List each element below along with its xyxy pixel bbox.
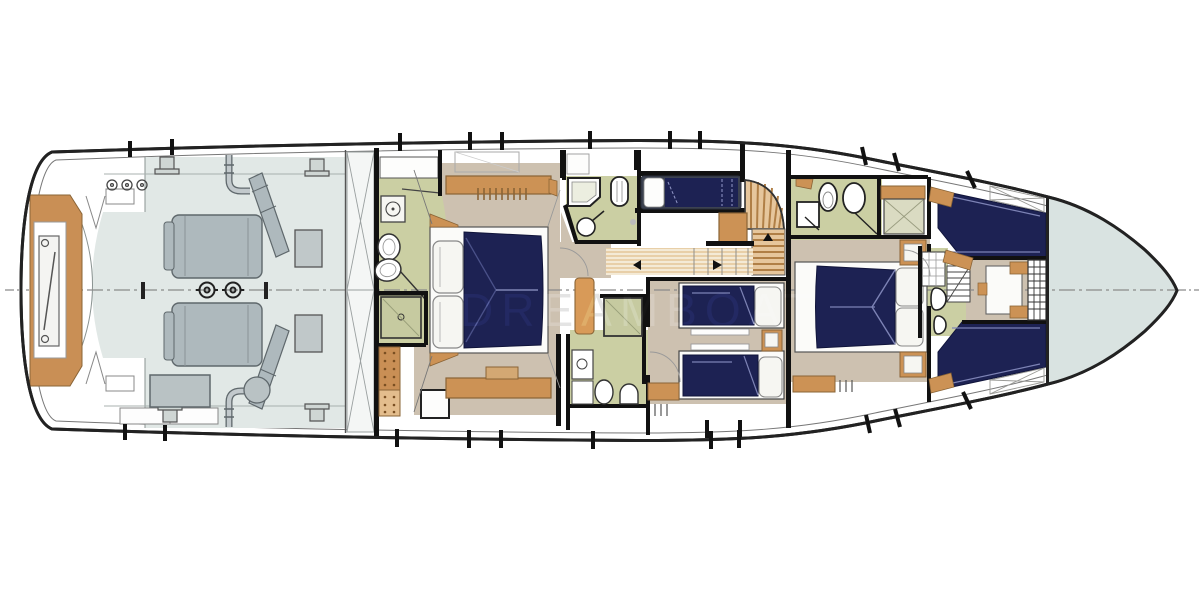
svg-text:DREAMBOAT: DREAMBOAT xyxy=(460,284,820,336)
